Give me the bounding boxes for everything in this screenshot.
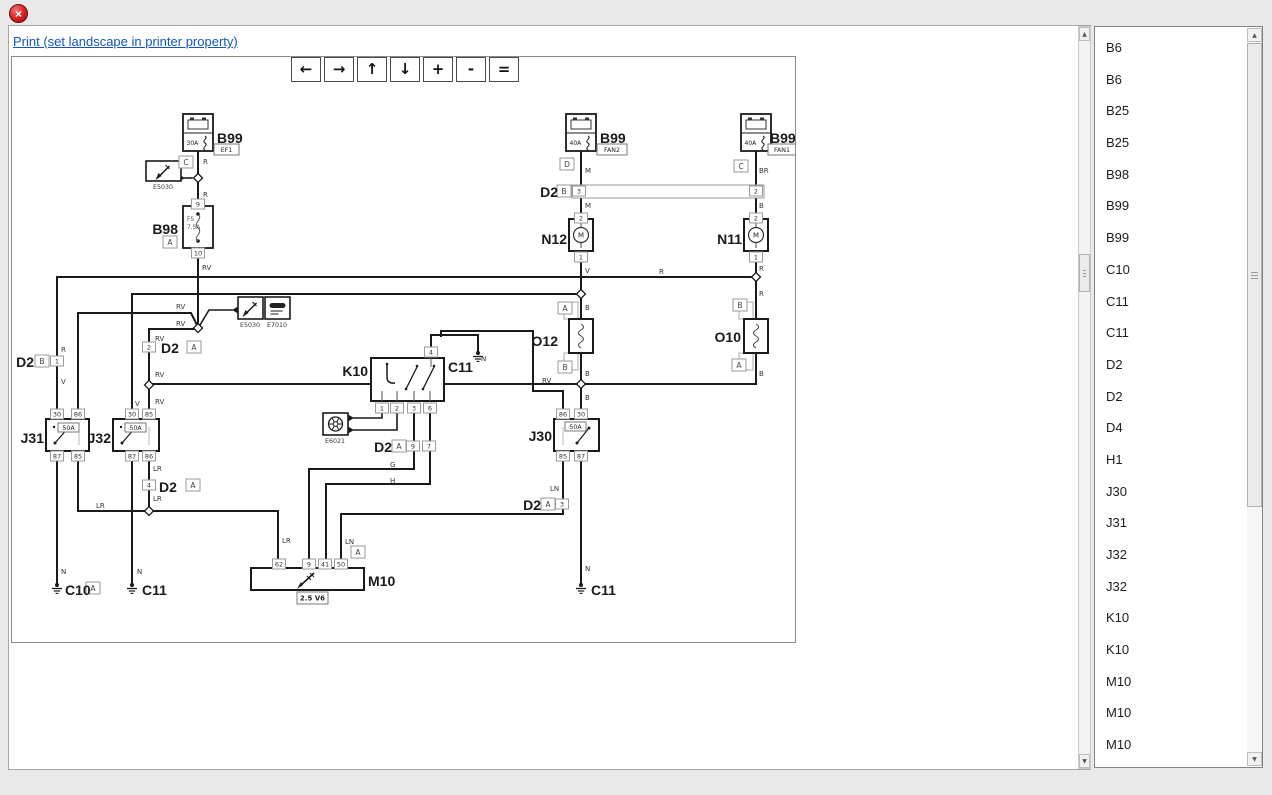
svg-text:R: R bbox=[759, 265, 764, 273]
svg-text:87: 87 bbox=[53, 452, 61, 460]
svg-text:RV: RV bbox=[155, 371, 164, 379]
svg-text:R: R bbox=[659, 268, 664, 276]
svg-text:9: 9 bbox=[196, 200, 200, 208]
svg-text:50A: 50A bbox=[569, 424, 582, 431]
svg-text:D2: D2 bbox=[540, 184, 558, 200]
svg-text:7.5A: 7.5A bbox=[187, 225, 200, 231]
svg-text:LN: LN bbox=[550, 485, 559, 493]
svg-text:B: B bbox=[585, 394, 590, 402]
svg-text:3: 3 bbox=[560, 500, 564, 508]
svg-text:50A: 50A bbox=[62, 425, 75, 432]
svg-text:30: 30 bbox=[128, 410, 136, 418]
zoom-out-button[interactable]: - bbox=[456, 57, 486, 82]
component-list-item[interactable]: D2 bbox=[1095, 349, 1246, 381]
svg-text:10: 10 bbox=[194, 249, 202, 257]
component-list-item[interactable]: K10 bbox=[1095, 634, 1246, 666]
svg-text:2: 2 bbox=[754, 214, 758, 222]
svg-text:RV: RV bbox=[155, 335, 164, 343]
svg-text:1: 1 bbox=[55, 357, 59, 365]
svg-text:B: B bbox=[585, 304, 590, 312]
component-eicon bbox=[146, 161, 181, 181]
component-list-item[interactable]: C10 bbox=[1095, 254, 1246, 286]
svg-text:N: N bbox=[585, 565, 590, 573]
svg-text:85: 85 bbox=[74, 452, 82, 460]
svg-text:RV: RV bbox=[542, 377, 551, 385]
list-scrollbar: ▲ ▼ bbox=[1247, 28, 1262, 766]
svg-text:50A: 50A bbox=[129, 425, 142, 432]
svg-text:RV: RV bbox=[176, 303, 185, 311]
svg-text:F5: F5 bbox=[187, 217, 194, 223]
component-list-item[interactable]: B6 bbox=[1095, 32, 1246, 64]
component-eicon bbox=[238, 297, 263, 319]
svg-text:86: 86 bbox=[559, 410, 567, 418]
svg-text:A: A bbox=[167, 238, 173, 247]
list-scrollbar-thumb[interactable] bbox=[1247, 43, 1262, 507]
svg-text:C: C bbox=[738, 162, 743, 171]
svg-text:4: 4 bbox=[429, 348, 433, 356]
main-scrollbar: ▲ ▼ bbox=[1078, 26, 1091, 769]
component-list-item[interactable]: B99 bbox=[1095, 190, 1246, 222]
svg-text:30: 30 bbox=[53, 410, 61, 418]
component-list-item[interactable]: B98 bbox=[1095, 159, 1246, 191]
ground-symbol bbox=[52, 583, 62, 593]
svg-text:E7010: E7010 bbox=[267, 322, 287, 329]
svg-text:J32: J32 bbox=[88, 430, 112, 446]
svg-text:2: 2 bbox=[579, 214, 583, 222]
svg-text:RV: RV bbox=[155, 398, 164, 406]
svg-text:R: R bbox=[203, 191, 208, 199]
svg-text:2: 2 bbox=[147, 343, 151, 351]
component-list-item[interactable]: B99 bbox=[1095, 222, 1246, 254]
diagram-frame: 30A40A40AF57.5AMM91013221212433086878530… bbox=[11, 56, 796, 643]
svg-text:85: 85 bbox=[559, 452, 567, 460]
svg-text:N12: N12 bbox=[541, 231, 567, 247]
svg-text:M10: M10 bbox=[368, 573, 395, 589]
component-ecu bbox=[251, 568, 364, 590]
component-battery: 40A bbox=[741, 114, 771, 151]
svg-text:A: A bbox=[736, 361, 742, 370]
svg-text:V: V bbox=[585, 267, 590, 275]
zoom-in-button[interactable]: + bbox=[423, 57, 453, 82]
svg-text:40A: 40A bbox=[570, 140, 583, 147]
component-list-item[interactable]: H1 bbox=[1095, 444, 1246, 476]
svg-text:N: N bbox=[61, 568, 66, 576]
svg-text:86: 86 bbox=[145, 452, 153, 460]
svg-text:B: B bbox=[561, 187, 566, 196]
pan-right-button[interactable]: → bbox=[324, 57, 354, 82]
svg-text:C10: C10 bbox=[65, 582, 91, 598]
svg-text:B: B bbox=[562, 363, 567, 372]
svg-text:D2: D2 bbox=[16, 354, 34, 370]
svg-text:4: 4 bbox=[147, 481, 151, 489]
svg-text:O10: O10 bbox=[715, 329, 742, 345]
component-motor: M bbox=[744, 219, 768, 251]
svg-text:R: R bbox=[61, 346, 66, 354]
svg-text:C: C bbox=[183, 158, 188, 167]
component-list: B6B6B25B25B98B99B99C10C11C11D2D2D4H1J30J… bbox=[1094, 26, 1263, 768]
svg-text:D2: D2 bbox=[523, 497, 541, 513]
svg-text:A: A bbox=[562, 304, 568, 313]
ground-symbol bbox=[127, 583, 137, 593]
component-list-item[interactable]: D2 bbox=[1095, 381, 1246, 413]
close-button[interactable]: × bbox=[9, 4, 28, 23]
svg-text:C11: C11 bbox=[591, 582, 616, 598]
component-battery: 30A bbox=[183, 114, 213, 151]
svg-text:K10: K10 bbox=[342, 363, 368, 379]
print-link[interactable]: Print (set landscape in printer property… bbox=[13, 34, 238, 49]
svg-text:A: A bbox=[355, 548, 361, 557]
svg-text:D2: D2 bbox=[374, 439, 392, 455]
svg-text:M: M bbox=[585, 167, 591, 175]
svg-text:A: A bbox=[191, 343, 197, 352]
svg-text:B: B bbox=[759, 202, 764, 210]
svg-text:B: B bbox=[759, 370, 764, 378]
svg-text:86: 86 bbox=[74, 410, 82, 418]
svg-text:B: B bbox=[39, 357, 44, 366]
svg-text:E5030: E5030 bbox=[153, 184, 173, 191]
component-k10 bbox=[371, 358, 444, 401]
component-list-item[interactable]: B25 bbox=[1095, 127, 1246, 159]
main-scrollbar-down-button[interactable]: ▼ bbox=[1079, 754, 1090, 768]
svg-text:A: A bbox=[396, 442, 402, 451]
pan-left-button[interactable]: ← bbox=[291, 57, 321, 82]
svg-text:87: 87 bbox=[577, 452, 585, 460]
svg-text:RV: RV bbox=[176, 320, 185, 328]
svg-text:D2: D2 bbox=[159, 479, 177, 495]
svg-text:A: A bbox=[190, 481, 196, 490]
wiring-diagram: 30A40A40AF57.5AMM91013221212433086878530… bbox=[12, 57, 795, 642]
svg-text:2: 2 bbox=[395, 404, 399, 412]
svg-text:A: A bbox=[90, 584, 96, 593]
component-list-item[interactable]: J31 bbox=[1095, 507, 1246, 539]
svg-text:H: H bbox=[390, 477, 395, 485]
svg-text:FAN1: FAN1 bbox=[774, 147, 790, 154]
svg-text:R: R bbox=[203, 158, 208, 166]
svg-text:3: 3 bbox=[577, 187, 581, 195]
svg-text:M: M bbox=[585, 202, 591, 210]
svg-text:LN: LN bbox=[345, 538, 354, 546]
component-list-item[interactable]: M10 bbox=[1095, 697, 1246, 729]
svg-text:E5030: E5030 bbox=[240, 322, 260, 329]
svg-text:6: 6 bbox=[428, 404, 432, 412]
component-list-item[interactable]: M10 bbox=[1095, 666, 1246, 698]
component-fuse: F57.5A bbox=[183, 206, 213, 248]
component-list-item[interactable]: D4 bbox=[1095, 412, 1246, 444]
svg-text:LR: LR bbox=[282, 537, 291, 545]
zoom-fit-button[interactable]: = bbox=[489, 57, 519, 82]
svg-text:B98: B98 bbox=[152, 221, 178, 237]
svg-text:41: 41 bbox=[321, 560, 329, 568]
svg-text:3: 3 bbox=[412, 404, 416, 412]
svg-text:BR: BR bbox=[759, 167, 769, 175]
component-list-item[interactable]: B25 bbox=[1095, 95, 1246, 127]
component-list-item[interactable]: B6 bbox=[1095, 64, 1246, 96]
svg-text:B: B bbox=[585, 370, 590, 378]
svg-text:B: B bbox=[737, 301, 742, 310]
svg-text:N: N bbox=[137, 568, 142, 576]
component-eicon bbox=[323, 413, 348, 435]
svg-text:9: 9 bbox=[307, 560, 311, 568]
list-scrollbar-up-button[interactable]: ▲ bbox=[1247, 28, 1262, 42]
component-eicon bbox=[265, 297, 290, 319]
component-battery: 40A bbox=[566, 114, 596, 151]
svg-text:62: 62 bbox=[275, 560, 283, 568]
svg-text:LR: LR bbox=[96, 502, 105, 510]
diagram-toolbar: ←→↑↓+-= bbox=[291, 57, 519, 82]
svg-text:FAN2: FAN2 bbox=[604, 147, 620, 154]
svg-text:1: 1 bbox=[380, 404, 384, 412]
svg-text:E6021: E6021 bbox=[325, 438, 345, 445]
svg-text:9: 9 bbox=[411, 442, 415, 450]
svg-text:LR: LR bbox=[153, 495, 162, 503]
component-list-item[interactable]: J32 bbox=[1095, 539, 1246, 571]
svg-text:G: G bbox=[390, 461, 395, 469]
svg-text:A: A bbox=[545, 500, 551, 509]
svg-text:RV: RV bbox=[202, 264, 211, 272]
svg-text:B99: B99 bbox=[217, 130, 243, 146]
component-list-item[interactable]: M10 bbox=[1095, 729, 1246, 761]
svg-text:J30: J30 bbox=[529, 428, 553, 444]
svg-text:30: 30 bbox=[577, 410, 585, 418]
pan-down-button[interactable]: ↓ bbox=[390, 57, 420, 82]
svg-text:50: 50 bbox=[337, 560, 345, 568]
svg-text:O12: O12 bbox=[532, 333, 559, 349]
component-list-item[interactable]: J32 bbox=[1095, 571, 1246, 603]
pan-up-button[interactable]: ↑ bbox=[357, 57, 387, 82]
component-list-item[interactable]: C11 bbox=[1095, 286, 1246, 318]
svg-text:R: R bbox=[759, 290, 764, 298]
svg-text:7: 7 bbox=[427, 442, 431, 450]
main-scrollbar-thumb[interactable] bbox=[1079, 254, 1090, 292]
ground-symbol bbox=[576, 583, 586, 593]
component-list-item[interactable]: K10 bbox=[1095, 602, 1246, 634]
component-list-item[interactable]: J30 bbox=[1095, 476, 1246, 508]
svg-text:30A: 30A bbox=[187, 140, 200, 147]
list-scrollbar-down-button[interactable]: ▼ bbox=[1247, 752, 1262, 766]
svg-text:V: V bbox=[61, 378, 66, 386]
svg-text:2: 2 bbox=[754, 187, 758, 195]
component-list-item[interactable]: C11 bbox=[1095, 317, 1246, 349]
svg-text:1: 1 bbox=[579, 253, 583, 261]
svg-text:C11: C11 bbox=[142, 582, 167, 598]
svg-text:LR: LR bbox=[153, 465, 162, 473]
app-window: × Print (set landscape in printer proper… bbox=[0, 0, 1272, 795]
svg-text:C11: C11 bbox=[448, 359, 473, 375]
svg-text:V: V bbox=[135, 400, 140, 408]
svg-text:85: 85 bbox=[145, 410, 153, 418]
svg-text:B99: B99 bbox=[600, 130, 626, 146]
component-motor: M bbox=[569, 219, 593, 251]
svg-text:2.5 V6: 2.5 V6 bbox=[300, 594, 325, 602]
svg-text:40A: 40A bbox=[745, 140, 758, 147]
main-scrollbar-up-button[interactable]: ▲ bbox=[1079, 27, 1090, 41]
svg-text:N11: N11 bbox=[717, 231, 742, 247]
svg-text:N: N bbox=[481, 355, 486, 363]
svg-text:J31: J31 bbox=[21, 430, 45, 446]
svg-text:87: 87 bbox=[128, 452, 136, 460]
svg-text:D: D bbox=[564, 160, 570, 169]
svg-text:EF1: EF1 bbox=[221, 147, 233, 154]
svg-text:M: M bbox=[753, 232, 759, 240]
svg-text:B99: B99 bbox=[770, 130, 795, 146]
svg-text:M: M bbox=[578, 232, 584, 240]
svg-text:1: 1 bbox=[754, 253, 758, 261]
